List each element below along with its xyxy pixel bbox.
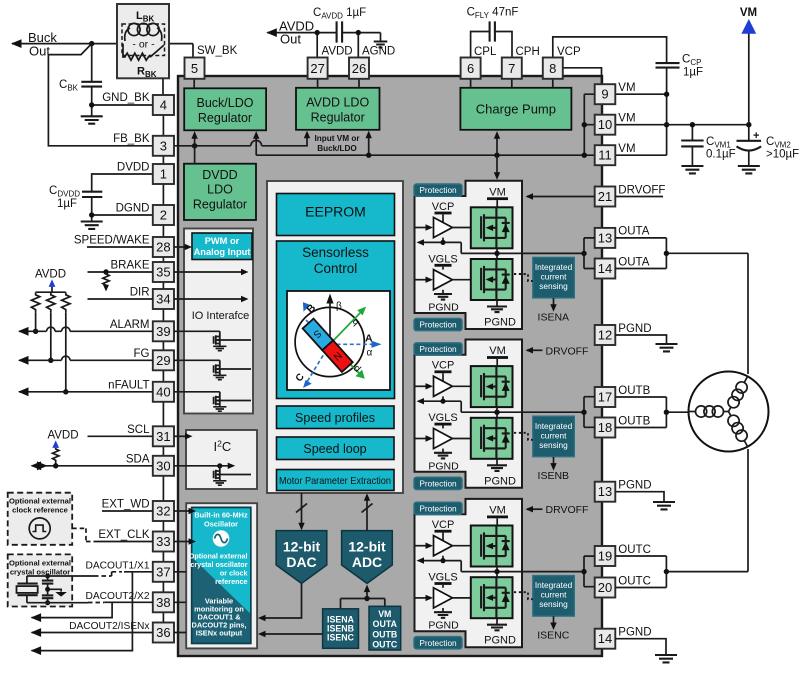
svg-text:14: 14 [598, 261, 612, 276]
svg-text:OUTB: OUTB [618, 415, 650, 427]
svg-text:1µF: 1µF [57, 198, 77, 210]
svg-text:α: α [367, 348, 373, 359]
svg-text:OUTB: OUTB [372, 629, 397, 639]
svg-text:1: 1 [160, 167, 167, 182]
svg-text:ADC: ADC [352, 554, 382, 570]
svg-text:36: 36 [156, 625, 170, 640]
svg-text:4: 4 [160, 98, 167, 113]
svg-text:Regulator: Regulator [193, 198, 247, 212]
svg-text:Buck/LDO: Buck/LDO [317, 144, 357, 153]
svg-text:32: 32 [156, 504, 170, 519]
svg-text:DIR: DIR [130, 287, 150, 299]
svg-text:13: 13 [598, 484, 612, 499]
svg-text:GND_BK: GND_BK [102, 92, 150, 104]
svg-text:SPEED/WAKE: SPEED/WAKE [74, 235, 150, 247]
svg-text:DRVOFF: DRVOFF [546, 504, 589, 516]
svg-text:sensing: sensing [539, 281, 568, 291]
svg-text:FB_BK: FB_BK [113, 133, 150, 145]
svg-text:14: 14 [598, 631, 612, 646]
svg-text:31: 31 [156, 429, 170, 444]
svg-text:AVDD: AVDD [322, 46, 353, 58]
svg-text:CFLY 47nF: CFLY 47nF [467, 7, 519, 21]
svg-text:IO Interafce: IO Interafce [192, 310, 249, 322]
svg-text:Motor Parameter Extraction: Motor Parameter Extraction [279, 475, 391, 487]
svg-text:DRVOFF: DRVOFF [546, 345, 589, 357]
svg-text:CPL: CPL [474, 46, 497, 58]
svg-text:29: 29 [156, 353, 170, 368]
svg-text:11: 11 [598, 148, 612, 163]
svg-text:EXT_WD: EXT_WD [102, 499, 150, 511]
svg-text:8: 8 [549, 61, 556, 76]
svg-text:DRVOFF: DRVOFF [618, 184, 665, 196]
svg-text:Sensorless: Sensorless [302, 245, 369, 260]
svg-text:PGND: PGND [618, 480, 651, 492]
svg-text:Input VM or: Input VM or [314, 134, 360, 143]
svg-text:β: β [336, 301, 342, 312]
svg-text:AVDD: AVDD [35, 269, 66, 281]
svg-text:AVDD LDO: AVDD LDO [306, 96, 369, 110]
svg-text:18: 18 [598, 420, 612, 435]
svg-text:Protection: Protection [419, 320, 457, 330]
svg-text:12-bit: 12-bit [348, 539, 386, 555]
svg-text:Oscillator: Oscillator [204, 520, 238, 529]
svg-text:OUTC: OUTC [372, 640, 398, 650]
svg-text:ISENC: ISENC [537, 630, 570, 642]
svg-text:VM: VM [740, 7, 757, 19]
svg-text:A: A [365, 333, 373, 345]
svg-text:38: 38 [156, 595, 170, 610]
svg-text:PGND: PGND [618, 627, 651, 639]
svg-text:Built-in 60-MHz: Built-in 60-MHz [194, 511, 248, 520]
svg-text:LDO: LDO [207, 183, 233, 197]
svg-text:PGND: PGND [484, 317, 516, 329]
svg-text:Speed loop: Speed loop [303, 442, 366, 456]
svg-text:27: 27 [310, 61, 324, 76]
svg-text:Buck/LDO: Buck/LDO [197, 96, 254, 110]
svg-text:39: 39 [156, 324, 170, 339]
svg-text:Protection: Protection [419, 185, 457, 195]
svg-text:DVDD: DVDD [202, 168, 237, 182]
svg-text:AVDD: AVDD [47, 430, 78, 442]
svg-text:FG: FG [134, 348, 150, 360]
svg-text:clock reference: clock reference [12, 506, 68, 515]
svg-text:ISENB: ISENB [538, 470, 570, 482]
svg-text:9: 9 [601, 87, 608, 102]
svg-text:DACOUT1/X1: DACOUT1/X1 [86, 560, 150, 571]
svg-text:SCL: SCL [127, 424, 150, 436]
svg-text:EEPROM: EEPROM [305, 204, 366, 220]
svg-text:13: 13 [598, 230, 612, 245]
svg-text:DVDD: DVDD [117, 162, 150, 174]
svg-text:+: + [753, 130, 759, 142]
svg-text:PGND: PGND [618, 323, 651, 335]
svg-text:Speed profiles: Speed profiles [295, 411, 375, 425]
svg-text:DGND: DGND [116, 203, 150, 215]
svg-text:OUTC: OUTC [618, 575, 651, 587]
svg-text:- or -: - or - [132, 39, 155, 51]
svg-text:Optional external: Optional external [9, 497, 71, 506]
svg-text:AGND: AGND [362, 46, 395, 58]
svg-text:0.1µF: 0.1µF [706, 149, 736, 161]
svg-text:VCP: VCP [557, 46, 581, 58]
svg-text:37: 37 [156, 564, 170, 579]
svg-text:OUTA: OUTA [618, 226, 649, 238]
svg-text:7: 7 [508, 61, 515, 76]
svg-text:OUTA: OUTA [373, 619, 398, 629]
svg-text:DACOUT2/ISENx: DACOUT2/ISENx [69, 621, 149, 632]
svg-text:OUTA: OUTA [618, 256, 649, 268]
svg-text:30: 30 [156, 458, 170, 473]
svg-text:40: 40 [156, 384, 170, 399]
svg-text:12-bit: 12-bit [283, 539, 321, 555]
svg-text:VCP: VCP [432, 201, 455, 213]
svg-text:5: 5 [191, 61, 198, 76]
svg-text:Analog Input: Analog Input [194, 247, 251, 257]
svg-text:PGND: PGND [428, 302, 459, 314]
svg-text:28: 28 [156, 240, 170, 255]
svg-text:Out: Out [280, 32, 301, 47]
svg-text:6: 6 [467, 61, 474, 76]
svg-text:DACOUT2/X2: DACOUT2/X2 [86, 591, 150, 602]
svg-text:SW_BK: SW_BK [197, 45, 238, 57]
svg-text:VGLS: VGLS [428, 253, 457, 265]
svg-text:17: 17 [598, 390, 612, 405]
svg-text:1µF: 1µF [683, 67, 703, 79]
svg-text:2: 2 [160, 208, 167, 223]
svg-text:EXT_CLK: EXT_CLK [98, 529, 149, 541]
svg-text:19: 19 [598, 549, 612, 564]
svg-text:Out: Out [29, 44, 50, 59]
svg-text:Optional external: Optional external [9, 559, 71, 568]
svg-text:nFAULT: nFAULT [108, 379, 149, 391]
svg-text:34: 34 [156, 292, 170, 307]
svg-text:20: 20 [598, 580, 612, 595]
svg-text:reference: reference [215, 577, 247, 586]
svg-text:Control: Control [314, 261, 358, 276]
svg-text:BRAKE: BRAKE [111, 260, 150, 272]
svg-text:ISENA: ISENA [538, 311, 570, 323]
svg-text:I2C: I2C [214, 439, 232, 455]
svg-text:VM: VM [618, 82, 635, 94]
svg-text:Integrated: Integrated [535, 262, 573, 272]
svg-text:3: 3 [160, 138, 167, 153]
svg-text:26: 26 [352, 61, 366, 76]
svg-text:VM: VM [378, 609, 391, 619]
svg-text:ALARM: ALARM [110, 319, 150, 331]
svg-text:current: current [541, 272, 568, 282]
svg-text:Regulator: Regulator [198, 111, 252, 125]
svg-text:CPH: CPH [516, 46, 540, 58]
svg-text:>10µF: >10µF [766, 149, 799, 161]
svg-text:33: 33 [156, 534, 170, 549]
svg-text:DAC: DAC [286, 554, 316, 570]
svg-text:12: 12 [598, 328, 612, 343]
svg-text:Regulator: Regulator [311, 111, 365, 125]
svg-text:21: 21 [598, 189, 612, 204]
svg-text:VM: VM [618, 113, 635, 125]
svg-text:Charge Pump: Charge Pump [476, 102, 556, 117]
svg-text:35: 35 [156, 265, 170, 280]
svg-text:VM: VM [618, 143, 635, 155]
svg-text:10: 10 [598, 117, 612, 132]
svg-text:ISENC: ISENC [327, 632, 355, 642]
svg-text:OUTB: OUTB [618, 385, 650, 397]
svg-text:VM: VM [489, 186, 506, 198]
svg-text:ISENx output: ISENx output [196, 629, 243, 638]
svg-text:SDA: SDA [126, 453, 150, 465]
svg-text:PWM or: PWM or [205, 236, 240, 246]
svg-text:OUTC: OUTC [618, 544, 651, 556]
